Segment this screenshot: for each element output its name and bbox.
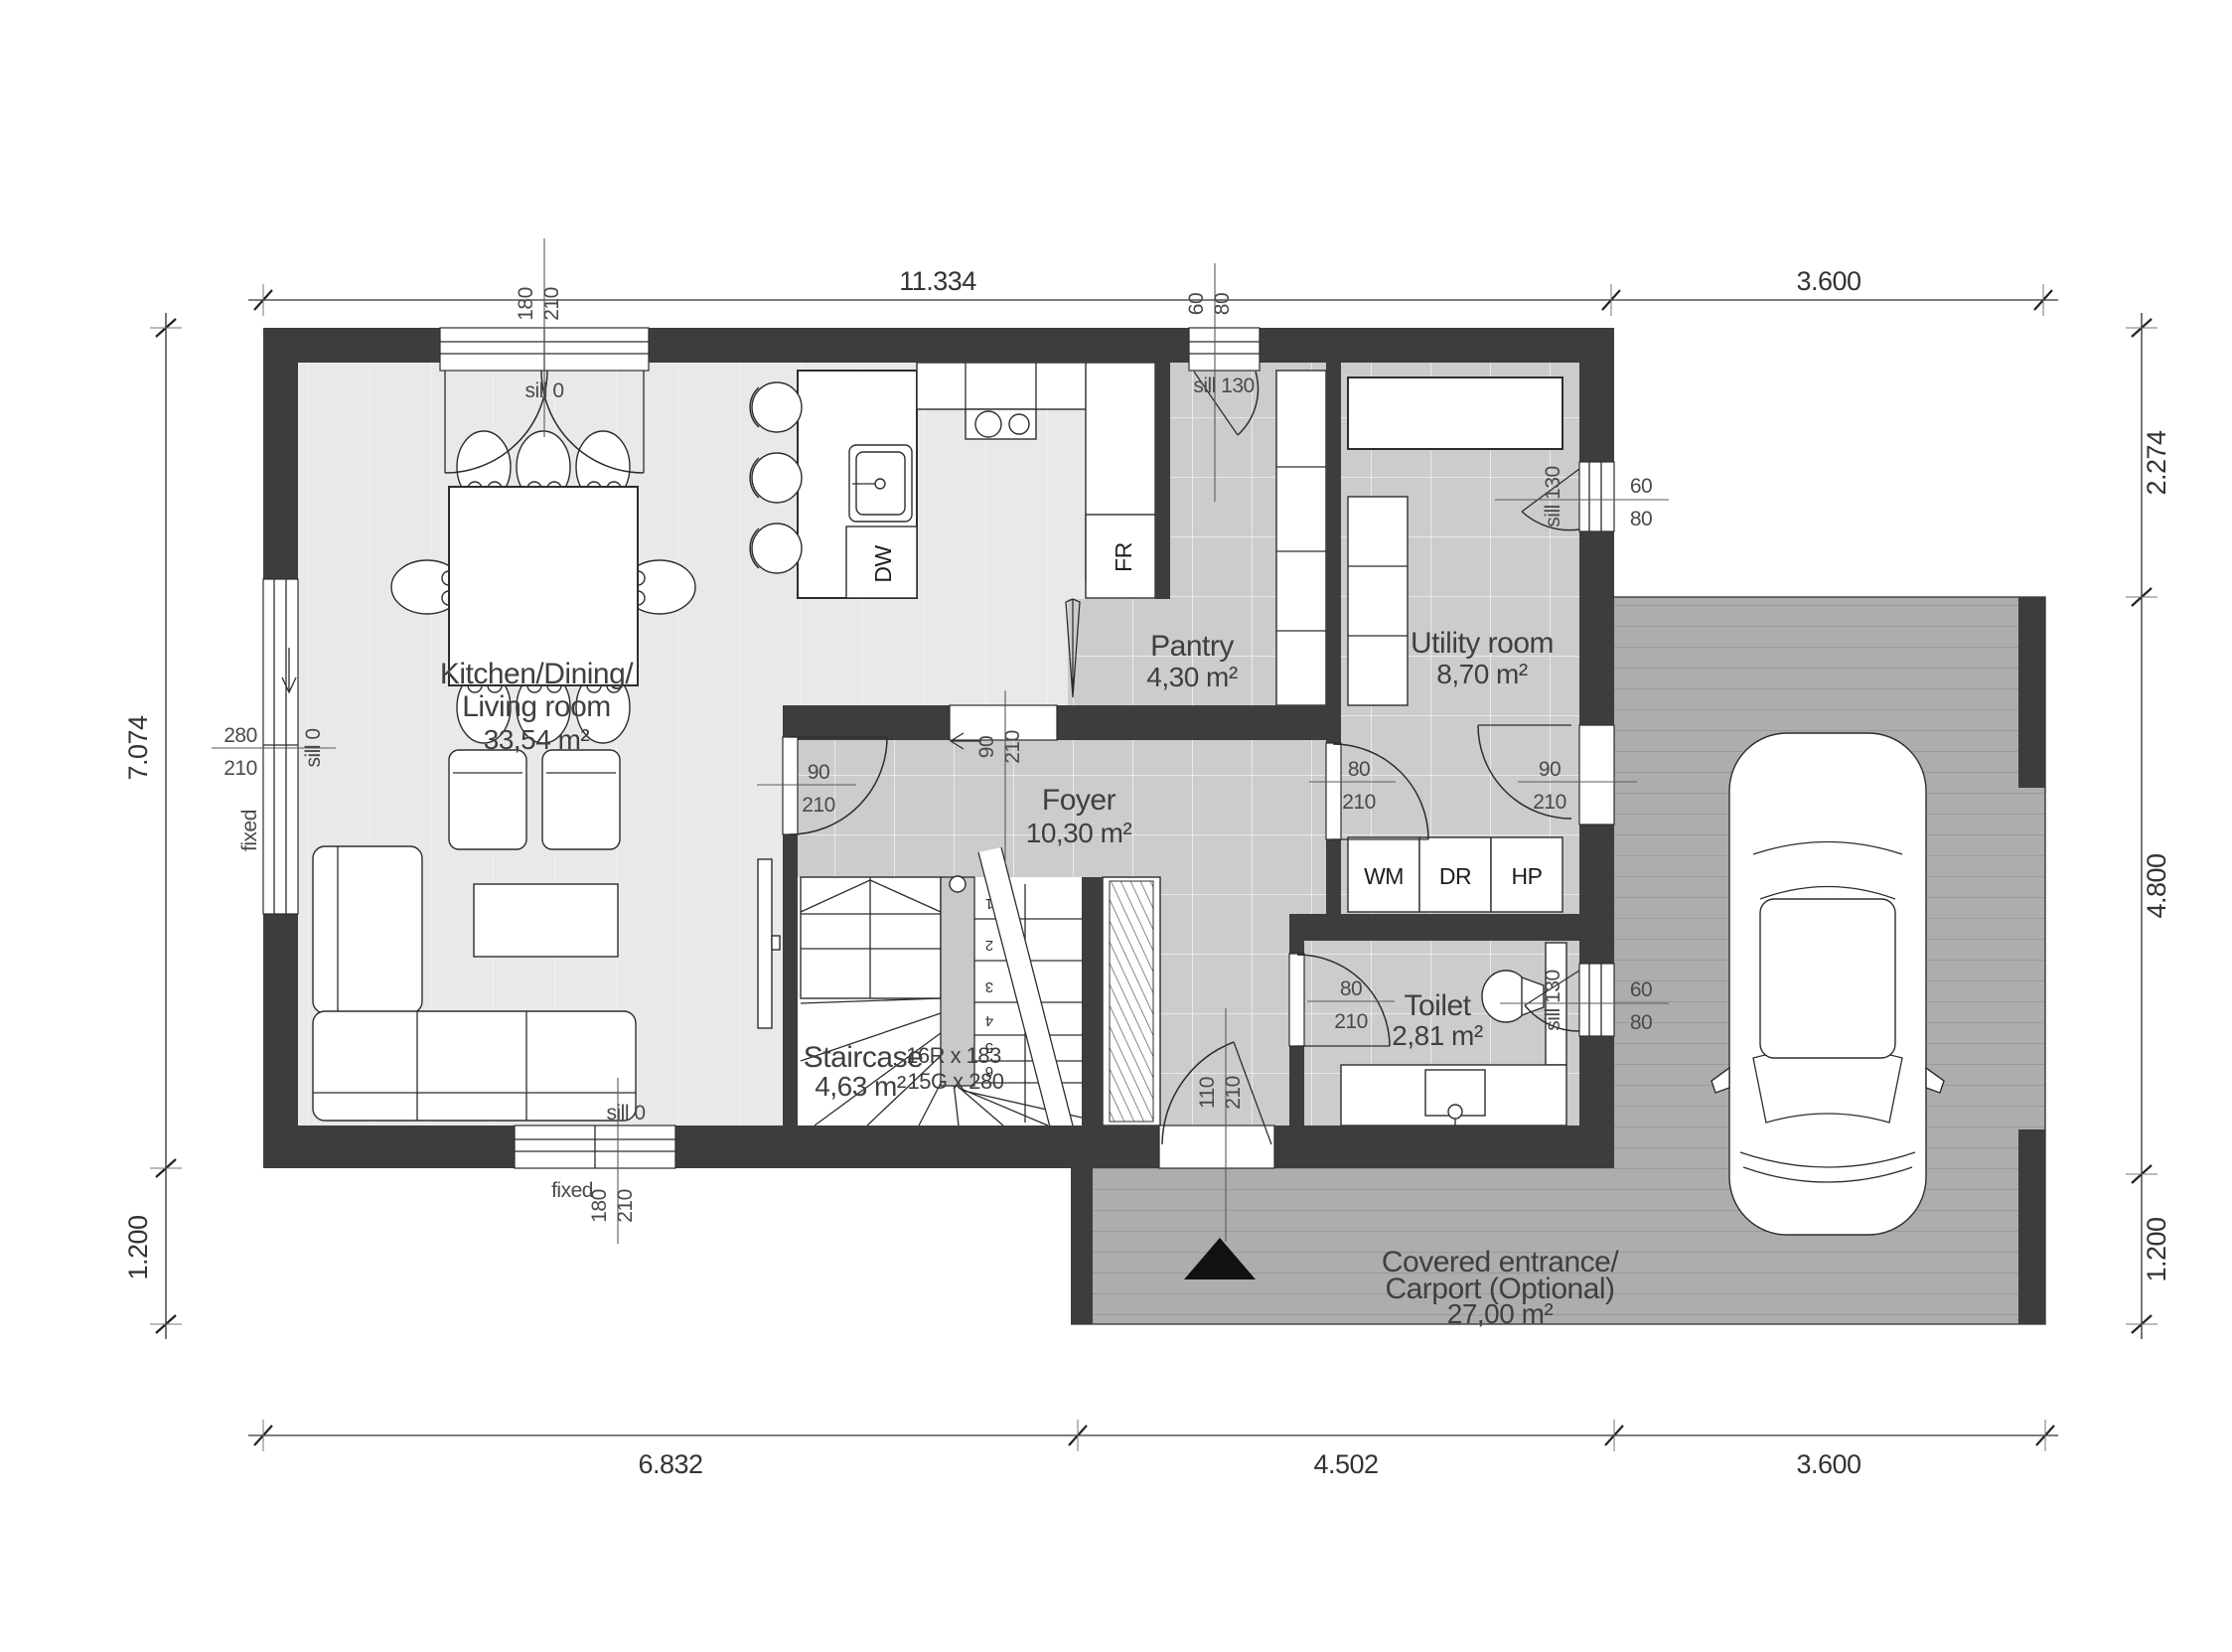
wardrobe (1103, 877, 1160, 1126)
washing-machine-label: WM (1364, 863, 1404, 889)
utility-ext-door-width: 90 (1539, 758, 1561, 781)
staircase: 1 2 3 4 5 6 (798, 847, 1082, 1165)
utility-door-width: 80 (1348, 758, 1370, 781)
foyer-area: 10,30 m² (1026, 818, 1132, 848)
passage-width: 90 (975, 736, 998, 758)
utility-window-height: 80 (1630, 508, 1652, 530)
floor-plan-page: 1 2 3 4 5 6 DW FR (0, 0, 2232, 1652)
wall-kitchen-pantry (1155, 363, 1170, 599)
dim-left-1: 7.074 (123, 715, 153, 781)
wardrobe-rail-hatch (1110, 881, 1153, 1122)
living-room-label2: Living room (462, 690, 611, 723)
carport-pillar-northeast (2018, 597, 2045, 788)
pantry-window-height: 80 (1211, 293, 1234, 315)
wall-pantry-south (1057, 705, 1341, 740)
basin-faucet (1448, 1105, 1462, 1119)
entry-door-height: 210 (1222, 1076, 1245, 1110)
left-window (263, 579, 298, 914)
utility-shelves (1348, 497, 1408, 705)
utility-door-height: 210 (1342, 791, 1376, 814)
staircase-area: 4,63 m² (815, 1071, 906, 1102)
sink-faucet (875, 479, 885, 489)
dryer-label: DR (1439, 863, 1471, 889)
pantry-shelving (1276, 371, 1326, 705)
utility-label: Utility room (1411, 627, 1554, 660)
toilet-window-height: 80 (1630, 1011, 1652, 1034)
living-room-area: 33,54 m² (484, 724, 590, 755)
passage-height: 210 (1001, 730, 1024, 764)
toilet-window-width: 60 (1630, 978, 1652, 1001)
burner (975, 411, 1001, 437)
left-window-sill: sill 0 (302, 728, 325, 767)
pantry-label: Pantry (1150, 630, 1234, 663)
burner (1009, 414, 1029, 434)
toilet-area: 2,81 m² (1392, 1020, 1483, 1051)
foyer-label: Foyer (1042, 784, 1116, 817)
dim-bottom-2: 4.502 (1313, 1449, 1378, 1479)
step-number: 2 (985, 937, 993, 954)
pantry-window-sill: sill 130 (1193, 375, 1254, 397)
toilet-door-width: 80 (1340, 977, 1362, 1000)
wall-foyer-north (783, 705, 950, 740)
carport-pillar-west (1071, 1168, 1093, 1324)
floor-plan-drawing: 1 2 3 4 5 6 DW FR (0, 0, 2232, 1652)
utility-window-sill: sill 130 (1542, 466, 1564, 526)
dishwasher-label: DW (870, 545, 896, 583)
entry-door-width: 110 (1196, 1077, 1219, 1109)
utility-counter (1348, 377, 1562, 449)
heat-pump-label: HP (1512, 863, 1543, 889)
coffee-table (474, 884, 618, 957)
toilet-window-sill: sill 130 (1542, 970, 1564, 1030)
car (1711, 733, 1944, 1235)
utility-area: 8,70 m² (1436, 659, 1528, 689)
bar-stools (750, 382, 802, 573)
dim-top-2: 3.600 (1796, 266, 1860, 296)
dim-bottom-1: 6.832 (638, 1449, 702, 1479)
left-window-height: 210 (223, 757, 257, 780)
newel-post (950, 876, 966, 892)
wall-south (263, 1126, 1614, 1168)
dim-left-2: 1.200 (123, 1215, 153, 1279)
bottom-window (515, 1126, 675, 1168)
toilet-door-height: 210 (1334, 1010, 1368, 1033)
bottom-window-width: 180 (588, 1189, 611, 1223)
staircase-goings: 15G x 280 (907, 1069, 1003, 1094)
bottom-window-sill: sill 0 (606, 1102, 645, 1125)
car-roof (1760, 899, 1895, 1058)
living-room-label: Kitchen/Dining/ (440, 658, 634, 690)
tv-bracket (772, 936, 780, 950)
carport-pillar-southeast (2018, 1129, 2045, 1324)
patio-door-sill: sill 0 (524, 379, 563, 402)
fridge-label: FR (1111, 542, 1136, 572)
toilet-label: Toilet (1404, 989, 1471, 1022)
patio-door-height: 210 (540, 287, 563, 321)
dim-top-1: 11.334 (899, 266, 976, 296)
pantry-window-width: 60 (1185, 293, 1208, 315)
wall-stair-east (1082, 877, 1103, 1126)
left-window-fixed: fixed (238, 810, 261, 851)
dim-right-1: 2.274 (2142, 430, 2171, 496)
bottom-window-height: 210 (614, 1189, 637, 1223)
step-number: 4 (985, 1012, 993, 1029)
utility-ext-door-height: 210 (1533, 791, 1566, 814)
foyer-door-height: 210 (802, 794, 835, 817)
staircase-risers: 16R x 183 (906, 1043, 1001, 1068)
dim-bottom-3: 3.600 (1796, 1449, 1860, 1479)
wall-pantry-utility (1326, 363, 1341, 705)
dining-table (449, 487, 638, 685)
step-number: 3 (985, 978, 993, 995)
bottom-window-fixed: fixed (551, 1179, 593, 1202)
pantry-area: 4,30 m² (1146, 662, 1238, 692)
dim-right-2: 4.800 (2142, 853, 2171, 918)
carport-area: 27,00 m² (1447, 1298, 1554, 1329)
patio-door-width: 180 (515, 287, 537, 321)
dim-right-3: 1.200 (2142, 1217, 2171, 1281)
utility-window-width: 60 (1630, 475, 1652, 498)
foyer-door-width: 90 (808, 761, 829, 784)
left-window-width: 280 (223, 724, 257, 747)
wall-toilet-north (1289, 914, 1579, 941)
